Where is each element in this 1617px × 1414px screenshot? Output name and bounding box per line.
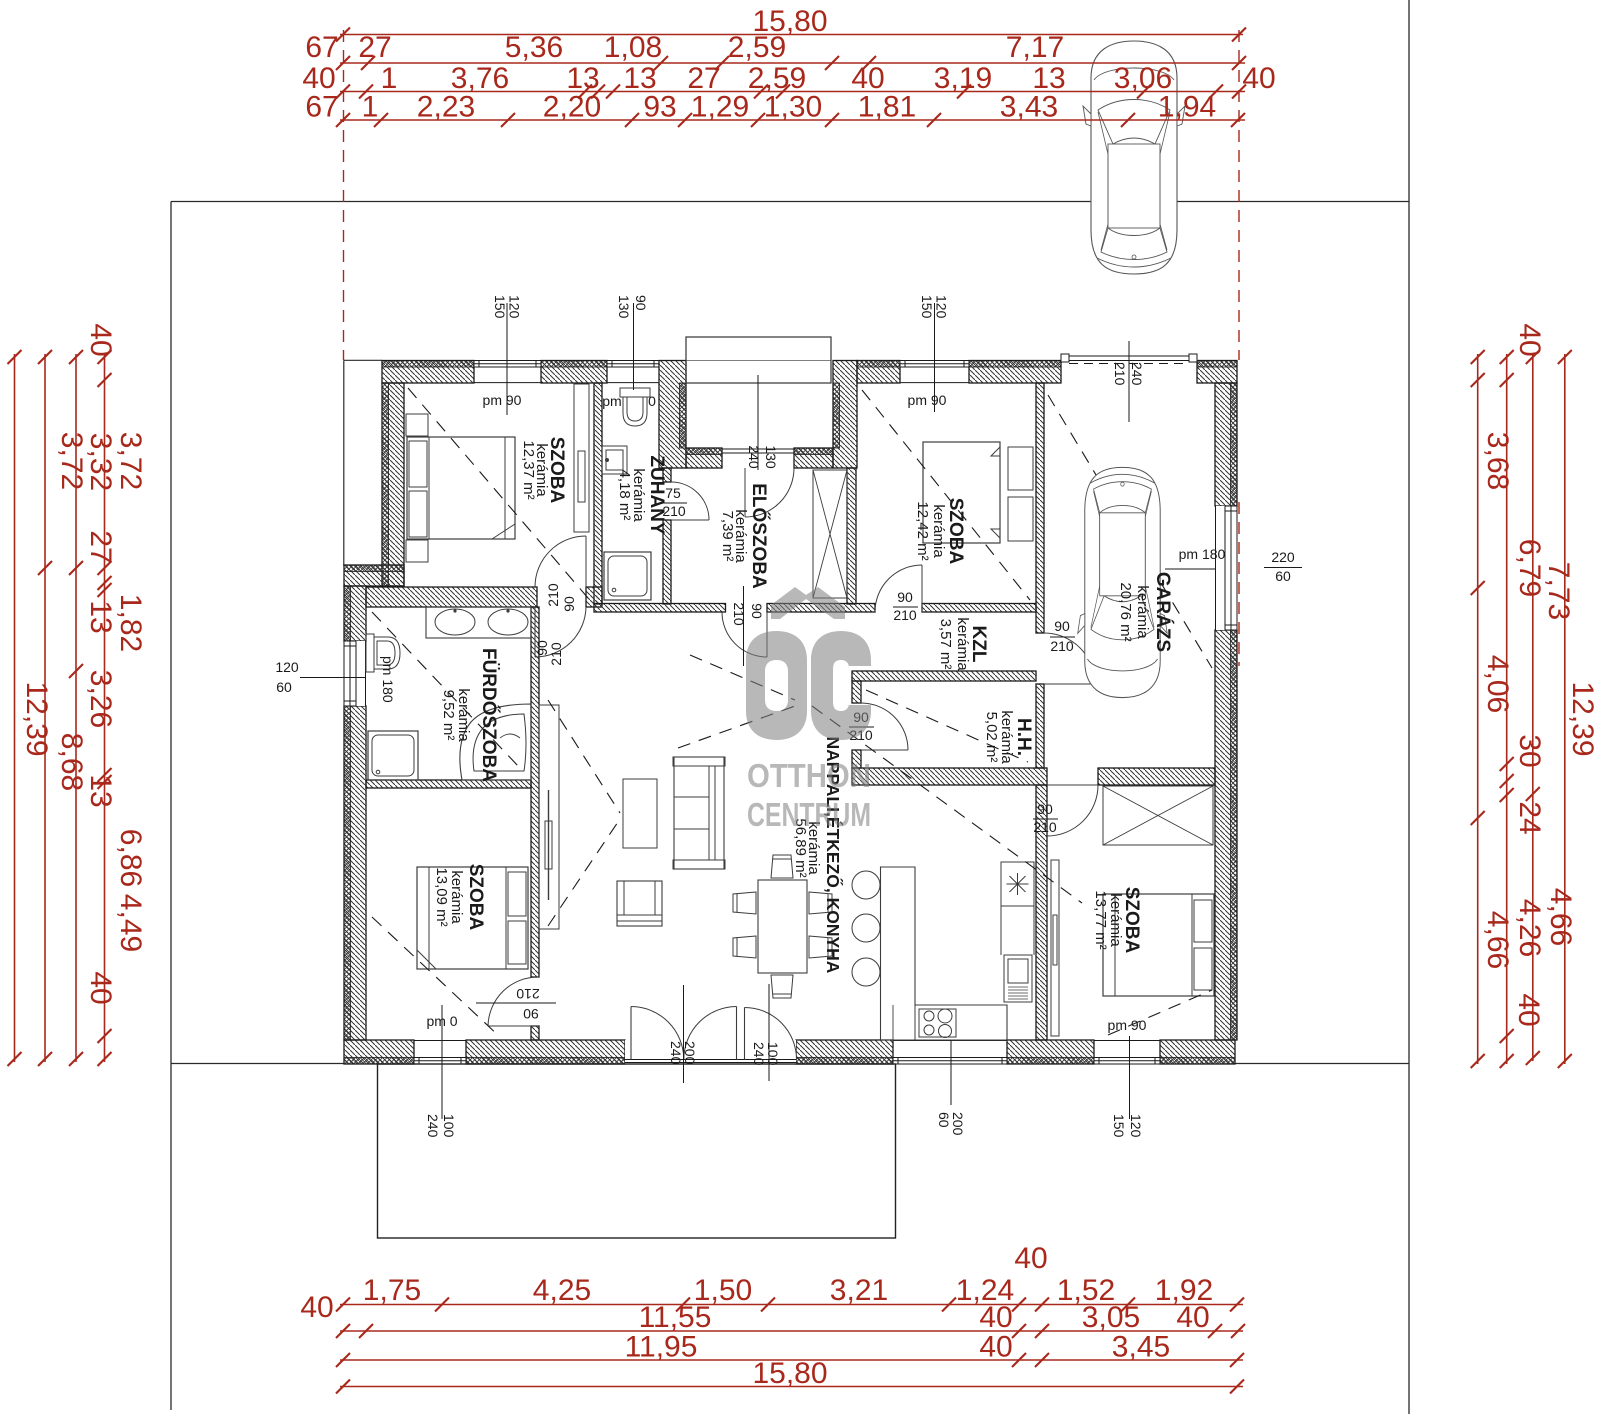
svg-text:CENTRUM: CENTRUM	[747, 796, 871, 833]
svg-text:40: 40	[1014, 1242, 1047, 1275]
svg-text:150: 150	[492, 295, 508, 319]
svg-text:4,66: 4,66	[1544, 888, 1577, 946]
svg-text:3,57 m²: 3,57 m²	[937, 619, 954, 670]
svg-text:40: 40	[1512, 993, 1545, 1026]
svg-text:15,80: 15,80	[752, 1357, 827, 1390]
svg-text:240: 240	[1129, 362, 1145, 386]
svg-text:OTTHON: OTTHON	[747, 757, 871, 794]
svg-text:210: 210	[1050, 638, 1074, 654]
svg-text:120: 120	[275, 659, 299, 675]
svg-text:3,05: 3,05	[1082, 1301, 1140, 1334]
svg-text:2,20: 2,20	[543, 91, 601, 124]
svg-text:pm 180: pm 180	[380, 656, 396, 703]
svg-text:130: 130	[616, 295, 632, 319]
svg-text:pm 90: pm 90	[908, 392, 947, 408]
svg-text:1,30: 1,30	[764, 91, 822, 124]
svg-text:120: 120	[1128, 1114, 1144, 1138]
svg-text:67: 67	[305, 91, 338, 124]
svg-text:60: 60	[276, 679, 292, 695]
svg-text:40: 40	[84, 971, 117, 1004]
svg-text:H.H.: H.H.	[1013, 718, 1034, 756]
svg-text:1,81: 1,81	[858, 91, 916, 124]
svg-text:27: 27	[358, 31, 391, 64]
svg-text:90: 90	[633, 295, 649, 311]
svg-text:3,43: 3,43	[1000, 91, 1058, 124]
svg-text:13: 13	[84, 600, 117, 633]
svg-text:3,72: 3,72	[55, 432, 88, 490]
svg-text:210: 210	[548, 642, 564, 666]
svg-text:4,06: 4,06	[1481, 655, 1514, 713]
svg-text:11,55: 11,55	[639, 1301, 712, 1334]
svg-text:SZOBA: SZOBA	[945, 498, 966, 565]
svg-text:100: 100	[441, 1114, 457, 1138]
svg-text:90: 90	[749, 603, 765, 619]
svg-text:12,37 m²: 12,37 m²	[520, 440, 537, 499]
svg-text:130: 130	[763, 445, 779, 469]
svg-text:210: 210	[893, 607, 917, 623]
svg-text:210: 210	[545, 583, 561, 607]
svg-text:1,08: 1,08	[604, 31, 662, 64]
svg-text:6,79: 6,79	[1513, 539, 1546, 597]
svg-text:24: 24	[1513, 801, 1546, 834]
svg-text:3,26: 3,26	[84, 670, 117, 728]
svg-text:210: 210	[1033, 819, 1057, 835]
svg-text:pm 180: pm 180	[1179, 546, 1226, 562]
svg-text:12,39: 12,39	[1566, 681, 1599, 756]
svg-text:kerámia: kerámia	[1134, 585, 1151, 639]
svg-text:240: 240	[668, 1041, 684, 1065]
svg-text:60: 60	[936, 1112, 952, 1128]
svg-text:240: 240	[746, 445, 762, 469]
svg-text:3,45: 3,45	[1112, 1331, 1170, 1364]
svg-text:pm 90: pm 90	[483, 392, 522, 408]
svg-text:1: 1	[381, 62, 398, 95]
svg-text:90: 90	[1037, 801, 1053, 817]
svg-text:93: 93	[643, 91, 676, 124]
svg-text:7,17: 7,17	[1006, 31, 1064, 64]
svg-text:40: 40	[979, 1331, 1012, 1364]
svg-text:13,09 m²: 13,09 m²	[433, 867, 450, 926]
svg-text:4,18 m²: 4,18 m²	[616, 470, 633, 521]
svg-text:40: 40	[1242, 62, 1275, 95]
svg-text:40: 40	[1513, 323, 1546, 356]
svg-text:40: 40	[300, 1291, 333, 1324]
svg-text:9,52 m²: 9,52 m²	[440, 690, 457, 741]
svg-text:0: 0	[648, 393, 656, 409]
svg-text:60: 60	[1275, 568, 1291, 584]
svg-text:210: 210	[731, 602, 747, 626]
svg-text:7,39 m²: 7,39 m²	[719, 511, 736, 562]
svg-text:120: 120	[507, 295, 523, 319]
svg-text:13,77 m²: 13,77 m²	[1092, 890, 1109, 949]
svg-text:12,42 m²: 12,42 m²	[914, 501, 931, 560]
svg-text:40: 40	[979, 1301, 1012, 1334]
svg-text:27: 27	[84, 530, 117, 563]
svg-text:90: 90	[561, 596, 577, 612]
svg-text:1,29: 1,29	[691, 91, 749, 124]
svg-text:1: 1	[362, 91, 379, 124]
svg-text:67: 67	[305, 31, 338, 64]
svg-text:2,23: 2,23	[417, 91, 475, 124]
svg-text:4,25: 4,25	[533, 1274, 591, 1307]
svg-text:200: 200	[682, 1041, 698, 1065]
svg-text:5,36: 5,36	[505, 31, 563, 64]
svg-text:40: 40	[1176, 1301, 1209, 1334]
svg-text:240: 240	[751, 1042, 767, 1066]
svg-text:GARÁZS: GARÁZS	[1152, 572, 1174, 652]
svg-text:120: 120	[934, 295, 950, 319]
svg-text:240: 240	[425, 1114, 441, 1138]
svg-text:210: 210	[516, 986, 540, 1002]
svg-text:90: 90	[523, 1006, 539, 1022]
svg-text:3,21: 3,21	[830, 1274, 888, 1307]
svg-text:200: 200	[950, 1112, 966, 1136]
svg-text:kerámia: kerámia	[954, 617, 971, 671]
svg-text:pm 0: pm 0	[426, 1013, 457, 1029]
svg-text:SZOBA: SZOBA	[465, 864, 486, 931]
svg-text:150: 150	[1111, 1114, 1127, 1138]
svg-text:3,19: 3,19	[934, 62, 992, 95]
svg-text:7,73: 7,73	[1542, 562, 1575, 620]
svg-text:150: 150	[919, 295, 935, 319]
svg-text:12,39: 12,39	[20, 681, 53, 756]
svg-text:5,02 m²: 5,02 m²	[983, 712, 1000, 763]
svg-text:90: 90	[1054, 618, 1070, 634]
svg-text:20,76 m²: 20,76 m²	[1117, 582, 1134, 641]
svg-text:220: 220	[1271, 549, 1295, 565]
svg-text:ELŐSZOBA: ELŐSZOBA	[748, 483, 770, 589]
svg-text:40: 40	[84, 323, 117, 356]
svg-text:30: 30	[1513, 734, 1546, 767]
svg-text:4,26: 4,26	[1513, 899, 1546, 957]
svg-text:kerámia: kerámia	[930, 504, 947, 558]
svg-text:6,86: 6,86	[114, 829, 147, 887]
svg-text:3,72: 3,72	[114, 432, 147, 490]
svg-text:2,59: 2,59	[728, 31, 786, 64]
svg-text:11,95: 11,95	[625, 1331, 698, 1364]
svg-text:pm: pm	[602, 393, 621, 409]
svg-text:8,68: 8,68	[55, 733, 88, 791]
svg-text:ZUHANY: ZUHANY	[646, 455, 667, 534]
svg-text:4,49: 4,49	[114, 894, 147, 952]
svg-text:4,66: 4,66	[1481, 911, 1514, 969]
svg-text:210: 210	[1112, 362, 1128, 386]
svg-text:pm 90: pm 90	[1108, 1017, 1147, 1033]
svg-text:100: 100	[765, 1042, 781, 1066]
svg-text:FÜRDŐSZOBA: FÜRDŐSZOBA	[478, 648, 500, 782]
svg-text:1,75: 1,75	[363, 1274, 421, 1307]
svg-text:90: 90	[897, 589, 913, 605]
svg-text:1,82: 1,82	[114, 594, 147, 652]
svg-text:3,68: 3,68	[1481, 432, 1514, 490]
svg-text:1,94: 1,94	[1158, 91, 1216, 124]
